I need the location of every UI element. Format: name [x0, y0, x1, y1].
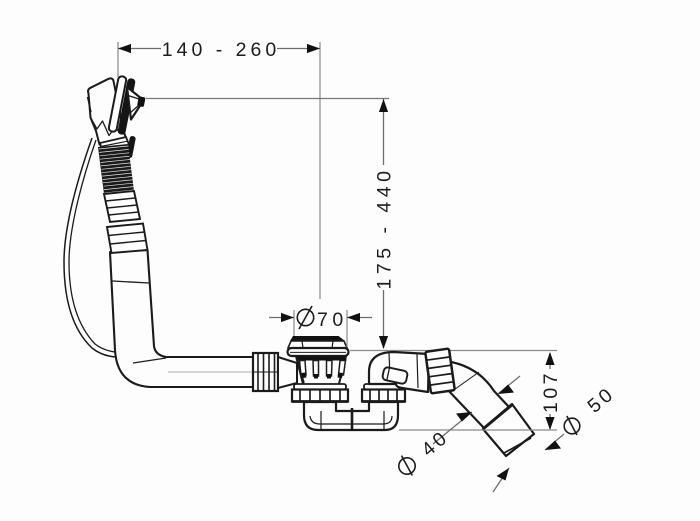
svg-text:107: 107 — [540, 370, 562, 413]
svg-text:70: 70 — [317, 309, 348, 331]
svg-text:175 - 440: 175 - 440 — [374, 167, 396, 290]
svg-text:140 - 260: 140 - 260 — [162, 39, 280, 61]
